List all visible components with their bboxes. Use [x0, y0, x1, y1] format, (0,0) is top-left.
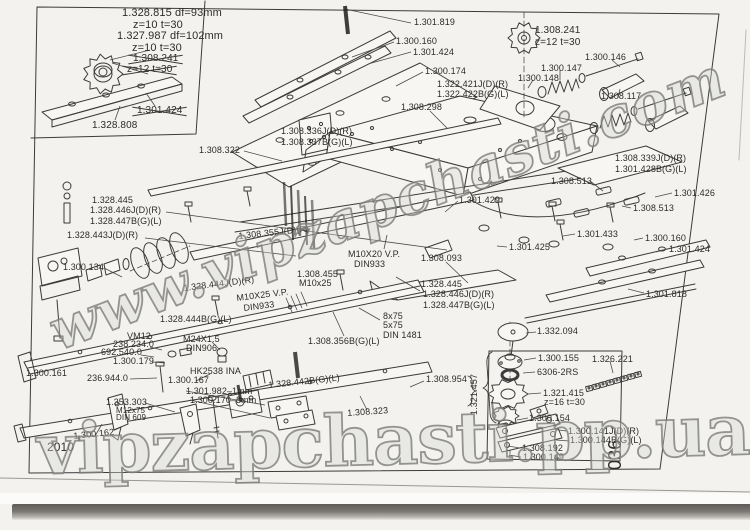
paper-edge — [0, 493, 750, 504]
part-label: 1.301.424 — [137, 106, 182, 117]
labels-layer: 1.328.815 df=93mmz=10 t=301.327.987 df=1… — [0, 0, 750, 530]
part-label: 1.308.241 — [133, 54, 178, 65]
part-label: M10x25 — [299, 279, 332, 288]
part-label: 1.308.117 — [601, 92, 641, 101]
part-label: DIN933 — [354, 260, 385, 269]
part-label: 1.300.146 — [585, 53, 626, 62]
part-label: 1.301.426 — [674, 189, 715, 198]
part-label: 1.300.170–3mm — [190, 396, 256, 405]
scan-page: 1.328.815 df=93mmz=10 t=301.327.987 df=1… — [0, 0, 750, 530]
part-label: 1.328.444B(G)(L) — [160, 315, 232, 324]
part-label: 1.308.356B(G)(L) — [308, 337, 380, 346]
part-label: 1.308.241 — [535, 26, 580, 37]
part-label: 1.328.447B(G)(L) — [423, 301, 495, 310]
part-label: 1.328.444J(D)(R) — [183, 275, 255, 293]
part-label: 1.308.355J(D)(R) — [238, 225, 310, 242]
part-label: 1.301.424 — [413, 48, 454, 57]
part-label: 1.328.442B(G)(L) — [268, 374, 340, 391]
part-label: 1.308.513 — [551, 177, 592, 186]
part-label: 036 — [606, 440, 625, 470]
part-label: 1.301.428B(G)(L) — [615, 165, 687, 174]
part-label: 1.308.339J(D)(R) — [615, 154, 686, 163]
part-label: 1.300.162 — [73, 428, 115, 442]
part-label: 1.301.818 — [646, 290, 687, 299]
part-label: 1.321.457 — [470, 374, 479, 415]
part-label: 1.328.446J(D)(R) — [90, 206, 161, 215]
part-label: z=16 t=30 — [544, 398, 585, 407]
part-label: 1.332.094 — [537, 327, 578, 336]
part-label: 1.322.422B(G)(L) — [437, 90, 509, 99]
part-label: 1.300.174 — [425, 67, 466, 76]
part-label: 1.308.322 — [199, 146, 240, 155]
part-label: 1.300.134 — [63, 263, 104, 272]
part-label: z=12 t=30 — [535, 38, 580, 49]
part-label: 1.300.160 — [645, 234, 686, 243]
part-label: 1.300.160 — [396, 37, 437, 46]
part-label: 1.308.337B(G)(L) — [281, 138, 353, 147]
part-label: 1.308.513 — [633, 204, 674, 213]
part-label: 1.328.447B(G)(L) — [90, 217, 162, 226]
part-label: 1.300.149 — [523, 453, 564, 462]
scan-shadow-band — [12, 504, 750, 520]
part-label: 1.300.148 — [518, 74, 559, 83]
part-label: DIN933 — [243, 300, 275, 313]
part-label: 1.300.154 — [529, 414, 570, 423]
part-label: 1.308.954 — [426, 375, 467, 384]
part-label: 1.301.429 — [459, 196, 500, 205]
part-label: 1.300.167 — [168, 376, 209, 385]
part-label: 1.301.433 — [577, 230, 618, 239]
part-label: 1.328.815 df=93mm — [122, 8, 222, 20]
part-label: 1.328.808 — [92, 121, 137, 132]
part-label: 236.944.0 — [87, 374, 128, 383]
part-label: z=12 t=30 — [127, 65, 172, 76]
part-label: 1.301.425 — [509, 243, 550, 252]
part-label: DIN 609 — [116, 414, 146, 422]
part-label: 2010 — [47, 441, 74, 454]
part-label: 1.301.424 — [669, 245, 710, 254]
part-label: 1.308.093 — [421, 254, 462, 263]
part-label: 1.308.336J(D)(R) — [281, 127, 352, 136]
part-label: 1.301.819 — [414, 18, 455, 27]
part-label: 1.327.987 df=102mm — [117, 31, 223, 43]
part-label: 1.308.323 — [347, 406, 389, 418]
part-label: DIN906 — [186, 344, 217, 353]
part-label: 6306-2RS — [537, 368, 578, 377]
part-label: 1.308.298 — [401, 103, 442, 112]
part-label: 1.328.446J(D)(R) — [423, 290, 494, 299]
part-label: DIN 1481 — [383, 331, 422, 340]
part-label: 1.328.443J(D)(R) — [67, 231, 138, 240]
part-label: 1.300.155 — [538, 354, 579, 363]
part-label: 1.300.161 — [26, 369, 67, 378]
part-label: 1.326.221 — [592, 355, 633, 364]
part-label: 1.300.179 — [113, 357, 154, 366]
